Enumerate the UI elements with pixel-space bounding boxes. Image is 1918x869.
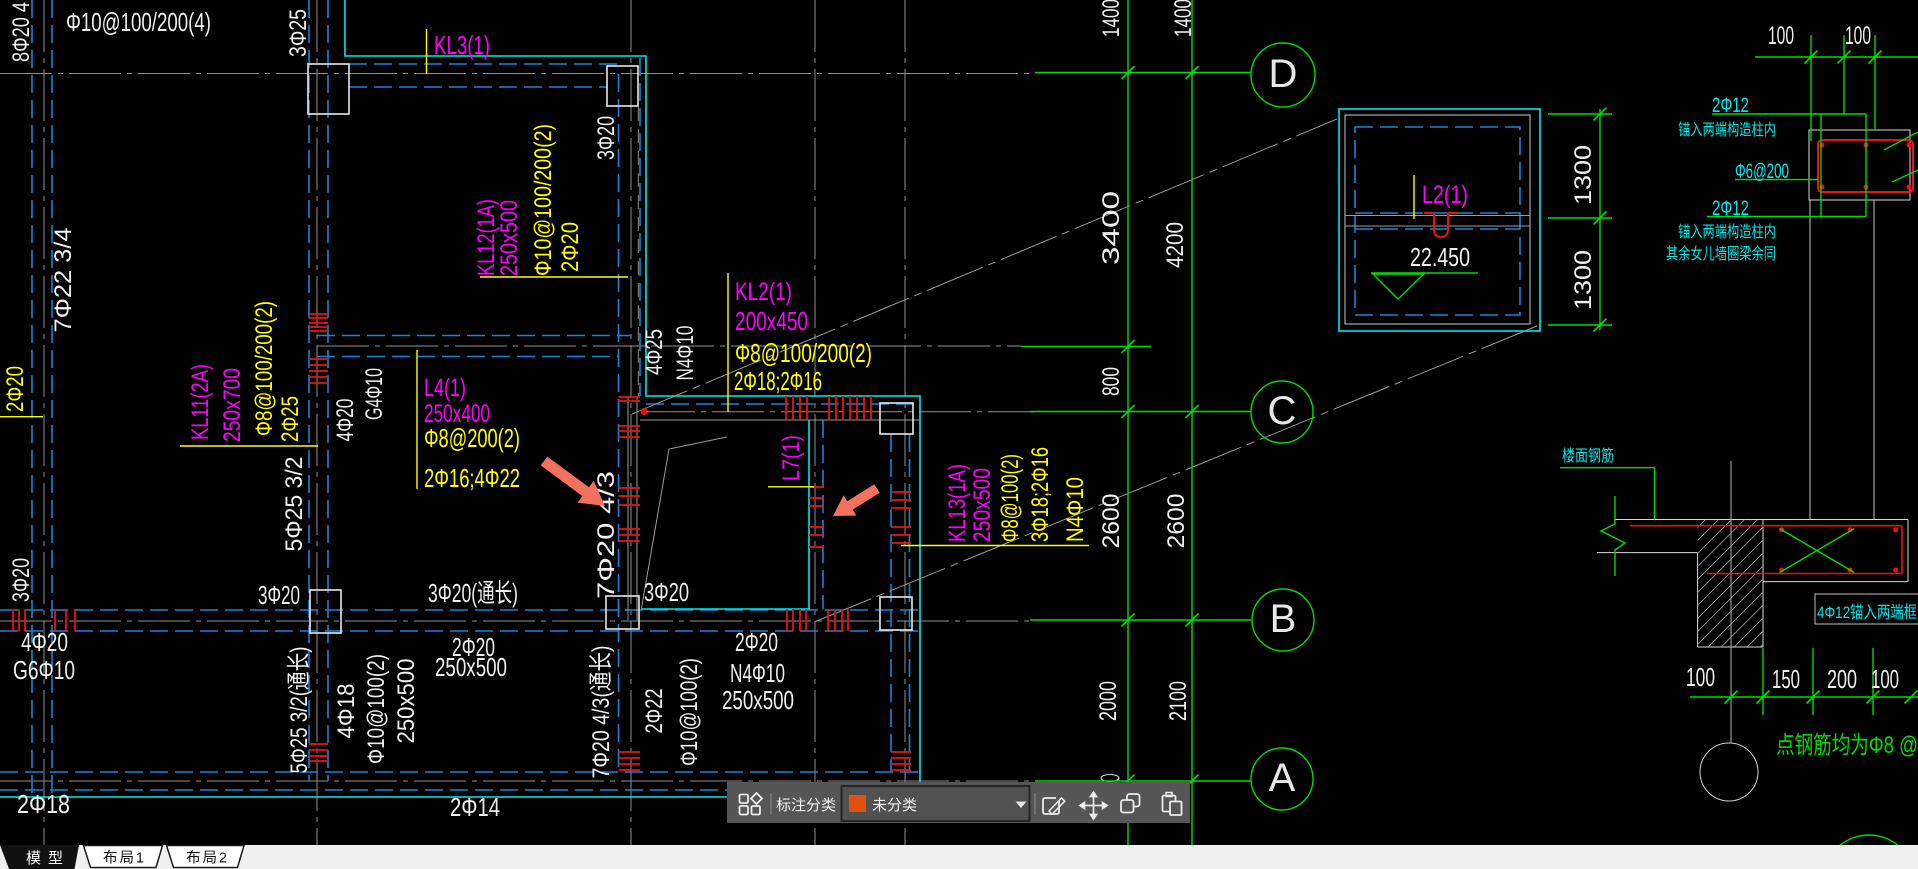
svg-text:4200: 4200 [1162, 222, 1189, 268]
svg-text:1400: 1400 [1170, 0, 1197, 37]
svg-text:2Φ16;4Φ22: 2Φ16;4Φ22 [424, 463, 520, 493]
svg-text:8Φ20 4: 8Φ20 4 [8, 2, 35, 62]
svg-text:4Φ20: 4Φ20 [332, 399, 359, 442]
svg-text:3Φ20: 3Φ20 [8, 558, 35, 602]
svg-text:200x450: 200x450 [735, 306, 808, 336]
svg-text:布局2: 布局2 [186, 850, 227, 867]
svg-text:2Φ20: 2Φ20 [557, 222, 584, 272]
svg-text:250x500: 250x500 [496, 200, 523, 276]
svg-text:250x500: 250x500 [393, 659, 420, 744]
svg-text:2Φ18;2Φ16: 2Φ18;2Φ16 [734, 366, 822, 396]
svg-text:Φ10@100(2): Φ10@100(2) [676, 658, 703, 766]
svg-text:N4Φ10: N4Φ10 [1062, 477, 1089, 542]
svg-text:L7(1): L7(1) [778, 435, 805, 481]
svg-text:N4Φ10: N4Φ10 [730, 658, 785, 688]
svg-text:楼面钢筋: 楼面钢筋 [1562, 447, 1614, 465]
svg-text:未分类: 未分类 [872, 797, 917, 814]
svg-text:3Φ20: 3Φ20 [644, 577, 689, 607]
svg-text:3Φ20: 3Φ20 [258, 580, 300, 610]
svg-text:1300: 1300 [1570, 145, 1597, 205]
svg-text:100: 100 [1768, 22, 1794, 50]
svg-text:G6Φ10: G6Φ10 [13, 655, 75, 685]
svg-text:2600: 2600 [1163, 494, 1190, 549]
svg-text:KL13(1A): KL13(1A) [944, 464, 971, 542]
svg-text:5Φ25 3/2: 5Φ25 3/2 [281, 457, 308, 552]
svg-text:D: D [1269, 52, 1298, 96]
svg-text:A: A [1269, 756, 1296, 800]
svg-text:标注分类: 标注分类 [776, 797, 836, 814]
svg-text:3Φ20(通长): 3Φ20(通长) [428, 578, 518, 608]
svg-text:250x700: 250x700 [219, 368, 246, 442]
svg-text:KL11(2A): KL11(2A) [187, 364, 214, 440]
svg-text:3Φ20: 3Φ20 [593, 116, 620, 160]
svg-text:4Φ12锚入两端框: 4Φ12锚入两端框 [1817, 603, 1917, 622]
svg-text:Φ10@100(2): Φ10@100(2) [363, 654, 390, 764]
svg-text:Φ8@100/200(2): Φ8@100/200(2) [735, 338, 872, 368]
svg-text:4Φ25: 4Φ25 [641, 329, 668, 375]
svg-text:2100: 2100 [1165, 681, 1192, 721]
svg-text:布局1: 布局1 [103, 850, 144, 867]
svg-text:100: 100 [1845, 22, 1871, 50]
svg-text:2Φ22: 2Φ22 [641, 689, 668, 734]
svg-text:22.450: 22.450 [1410, 242, 1470, 272]
svg-text:3Φ25: 3Φ25 [285, 9, 312, 57]
svg-text:7Φ20 4/3(通长): 7Φ20 4/3(通长) [588, 646, 615, 779]
svg-text:Φ6@200: Φ6@200 [1735, 160, 1789, 183]
svg-text:3400: 3400 [1098, 191, 1125, 265]
svg-text:Φ8@200(2): Φ8@200(2) [424, 423, 520, 453]
svg-text:250x500: 250x500 [722, 685, 794, 715]
svg-text:250x500: 250x500 [969, 468, 996, 542]
svg-text:KL3(1): KL3(1) [434, 30, 490, 60]
svg-text:4Φ20: 4Φ20 [21, 627, 68, 657]
svg-text:7Φ22 3/4: 7Φ22 3/4 [50, 228, 77, 333]
svg-text:5Φ25 3/2(通长): 5Φ25 3/2(通长) [286, 647, 313, 774]
svg-text:L2(1): L2(1) [1422, 181, 1468, 209]
svg-text:Φ10@100/200(4): Φ10@100/200(4) [66, 7, 211, 37]
svg-text:3Φ18;2Φ16: 3Φ18;2Φ16 [1027, 447, 1054, 542]
svg-text:2Φ14: 2Φ14 [450, 792, 500, 822]
svg-text:B: B [1270, 597, 1297, 641]
svg-text:锚入两端构造柱内: 锚入两端构造柱内 [1678, 121, 1776, 139]
svg-text:其余女儿墙圈梁余同: 其余女儿墙圈梁余同 [1666, 244, 1776, 263]
svg-text:150: 150 [1772, 664, 1800, 694]
svg-text:Φ8@100(2): Φ8@100(2) [997, 454, 1024, 542]
svg-text:点钢筋均为Φ8 @: 点钢筋均为Φ8 @ [1776, 732, 1918, 759]
svg-text:1300: 1300 [1570, 250, 1597, 310]
svg-text:2000: 2000 [1095, 681, 1122, 721]
svg-text:2Φ25: 2Φ25 [277, 396, 304, 442]
svg-text:G4Φ10: G4Φ10 [361, 368, 388, 420]
svg-text:Φ8@100/200(2): Φ8@100/200(2) [251, 301, 278, 436]
svg-text:2600: 2600 [1098, 494, 1125, 549]
svg-text:C: C [1268, 389, 1297, 433]
svg-text:800: 800 [1098, 367, 1125, 396]
svg-text:100: 100 [1871, 664, 1899, 694]
svg-text:N4Φ10: N4Φ10 [672, 326, 699, 381]
svg-text:L4(1): L4(1) [424, 374, 466, 402]
svg-text:2Φ18: 2Φ18 [17, 789, 70, 819]
svg-text:100: 100 [1686, 662, 1715, 692]
svg-text:2Φ20: 2Φ20 [2, 366, 29, 412]
svg-text:Φ10@100/200(2): Φ10@100/200(2) [530, 124, 557, 276]
svg-text:2Φ12: 2Φ12 [1712, 94, 1749, 117]
svg-text:KL2(1): KL2(1) [735, 278, 792, 306]
svg-text:4Φ18: 4Φ18 [333, 684, 360, 739]
svg-text:2Φ20: 2Φ20 [735, 627, 778, 657]
svg-text:锚入两端构造柱内: 锚入两端构造柱内 [1678, 223, 1776, 241]
svg-text:200: 200 [1827, 664, 1857, 694]
svg-text:2Φ12: 2Φ12 [1712, 197, 1749, 220]
svg-text:1400: 1400 [1098, 0, 1125, 37]
svg-text:250x500: 250x500 [435, 652, 507, 682]
